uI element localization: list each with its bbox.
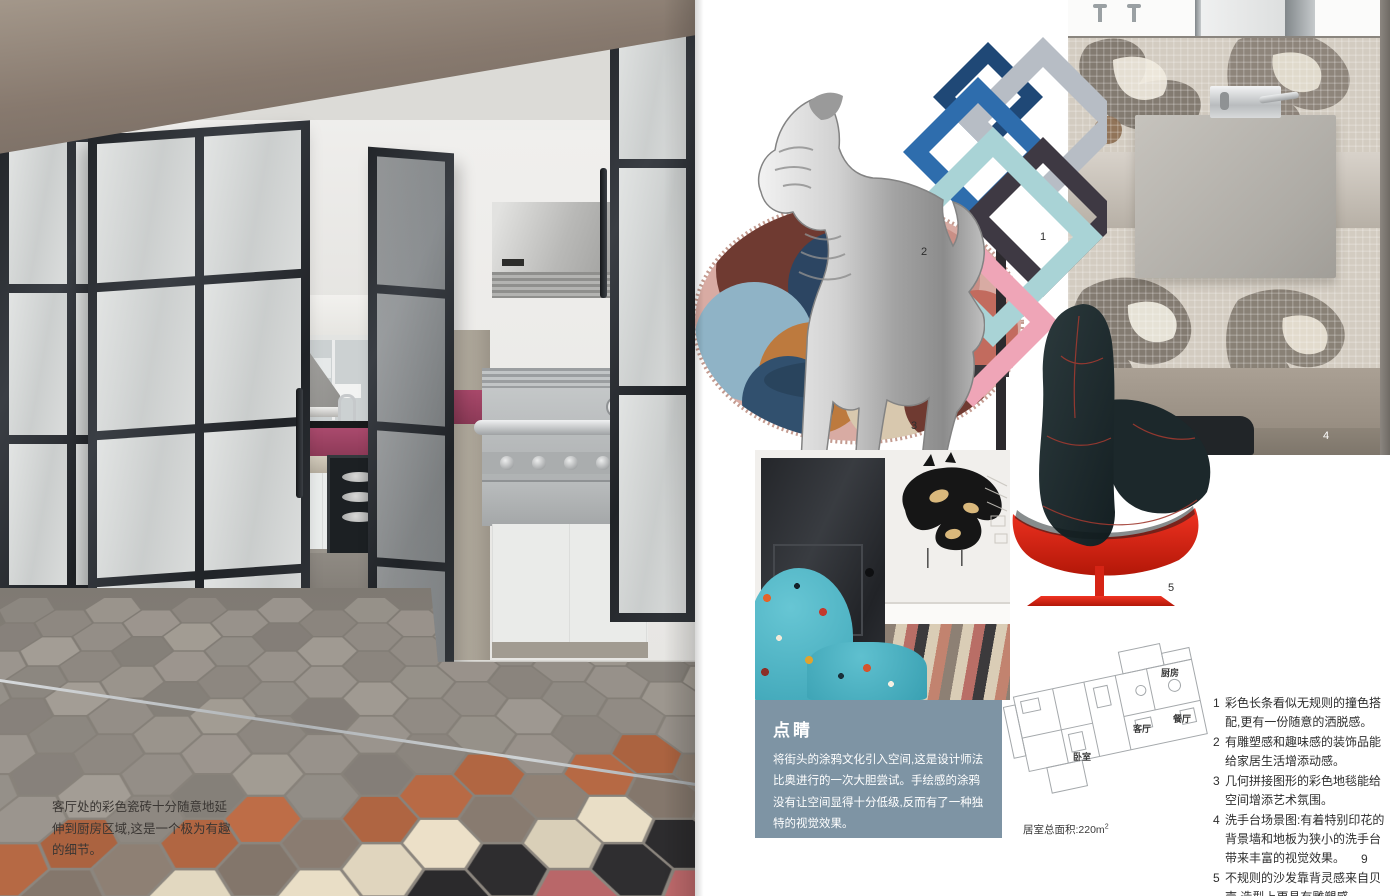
- note-number: 2: [1213, 733, 1225, 771]
- room-label-dining: 餐厅: [1172, 713, 1191, 724]
- note-number: 3: [1213, 772, 1225, 810]
- hood-logo: [502, 259, 524, 266]
- note-item: 5 不规则的沙发靠背灵感来自贝壳,造型上更具有雕塑感。: [1213, 869, 1385, 896]
- sliding-glass-door: [610, 0, 695, 622]
- chrome-divider: [1285, 0, 1315, 36]
- frosted-pane: [97, 285, 195, 431]
- cabinet-plinth: [492, 642, 648, 658]
- graffiti-room-photo: [755, 450, 1010, 700]
- callout-2: 2: [921, 246, 927, 258]
- frosted-pane: [619, 395, 686, 613]
- note-text: 彩色长条看似无规则的撞色搭配,更有一份随意的洒脱感。: [1225, 694, 1385, 732]
- note-item: 3 几何拼接图形的彩色地毯能给空间增添艺术氛围。: [1213, 772, 1385, 810]
- photo-edge-shadow: [1380, 0, 1390, 455]
- room-label-bedroom: 卧室: [1073, 751, 1091, 762]
- frosted-pane: [204, 130, 302, 276]
- door-pull-handle: [600, 168, 607, 298]
- grill-knob: [500, 456, 514, 470]
- area-text: 居室总面积:220m: [1023, 824, 1105, 836]
- area-label: 居室总面积:220m2: [1023, 822, 1109, 837]
- armchair-fjord: [983, 296, 1219, 610]
- magazine-spread: 客厅处的彩色瓷砖十分随意地延伸到厨房区域,这是一个极为有趣的细节。: [0, 0, 1390, 896]
- stone-sink-block: [1135, 115, 1336, 278]
- note-text: 几何拼接图形的彩色地毯能给空间增添艺术氛围。: [1225, 772, 1385, 810]
- butterfly-print: [755, 568, 927, 700]
- note-number: 1: [1213, 694, 1225, 732]
- frosted-pane: [9, 142, 67, 284]
- note-text: 不规则的沙发靠背灵感来自贝壳,造型上更具有雕塑感。: [1225, 869, 1385, 896]
- grill-knob: [596, 456, 610, 470]
- right-collage-page: 4: [695, 0, 1390, 896]
- floor-plan: 厨房 餐厅 客厅 卧室: [1003, 628, 1211, 800]
- clear-pane: [377, 293, 445, 426]
- callout-3: 3: [911, 420, 917, 432]
- note-item: 4 洗手台场景图:有着特别印花的背景墙和地板为狭小的洗手台带来丰富的视觉效果。: [1213, 811, 1385, 868]
- mirror-segment: [1201, 0, 1285, 36]
- notes-list: 1 彩色长条看似无规则的撞色搭配,更有一份随意的洒脱感。 2 有雕塑感和趣味感的…: [1213, 694, 1385, 896]
- highlight-title: 点睛: [773, 716, 984, 741]
- mirror-cabinet: [1068, 0, 1390, 38]
- callout-1: 1: [1040, 231, 1046, 243]
- frosted-pane: [97, 137, 195, 283]
- grill-knob: [564, 456, 578, 470]
- grill-knob: [532, 456, 546, 470]
- frosted-pane: [9, 444, 67, 586]
- highlight-box: 点睛 将街头的涂鸦文化引入空间,这是设计师法比奥进行的一次大胆尝试。手绘感的涂鸦…: [755, 700, 1002, 838]
- frosted-pane: [97, 433, 195, 579]
- tap-fixture: [1132, 8, 1136, 22]
- note-number: 4: [1213, 811, 1225, 868]
- frosted-pane: [204, 278, 302, 424]
- note-item: 1 彩色长条看似无规则的撞色搭配,更有一份随意的洒脱感。: [1213, 694, 1385, 732]
- callout-5: 5: [1168, 582, 1174, 594]
- faucet-handle: [1220, 92, 1229, 110]
- highlight-body: 将街头的涂鸦文化引入空间,这是设计师法比奥进行的一次大胆尝试。手绘感的涂鸦没有让…: [773, 750, 984, 835]
- callout-4: 4: [1323, 430, 1329, 442]
- note-item: 2 有雕塑感和趣味感的装饰品能给家居生活增添动感。: [1213, 733, 1385, 771]
- wall-faucet: [1210, 86, 1281, 118]
- floor-tile: [256, 598, 314, 622]
- area-superscript: 2: [1105, 824, 1109, 831]
- frosted-pane: [9, 293, 67, 435]
- note-number: 5: [1213, 869, 1225, 896]
- room-label-living: 客厅: [1132, 723, 1151, 734]
- note-text: 有雕塑感和趣味感的装饰品能给家居生活增添动感。: [1225, 733, 1385, 771]
- left-photo-page: 客厅处的彩色瓷砖十分随意地延伸到厨房区域,这是一个极为有趣的细节。: [0, 0, 695, 896]
- room-label-kitchen: 厨房: [1161, 667, 1179, 678]
- frosted-pane: [204, 425, 302, 571]
- floor-tile: [344, 598, 400, 622]
- door-pull-handle: [296, 388, 303, 498]
- page-number: 9: [1361, 852, 1368, 866]
- tap-fixture: [1098, 8, 1102, 22]
- chrome-divider: [1195, 0, 1201, 36]
- frosted-pane: [619, 168, 686, 386]
- clear-pane: [377, 430, 445, 563]
- photo-caption: 客厅处的彩色瓷砖十分随意地延伸到厨房区域,这是一个极为有趣的细节。: [52, 797, 238, 862]
- clear-pane: [377, 156, 445, 289]
